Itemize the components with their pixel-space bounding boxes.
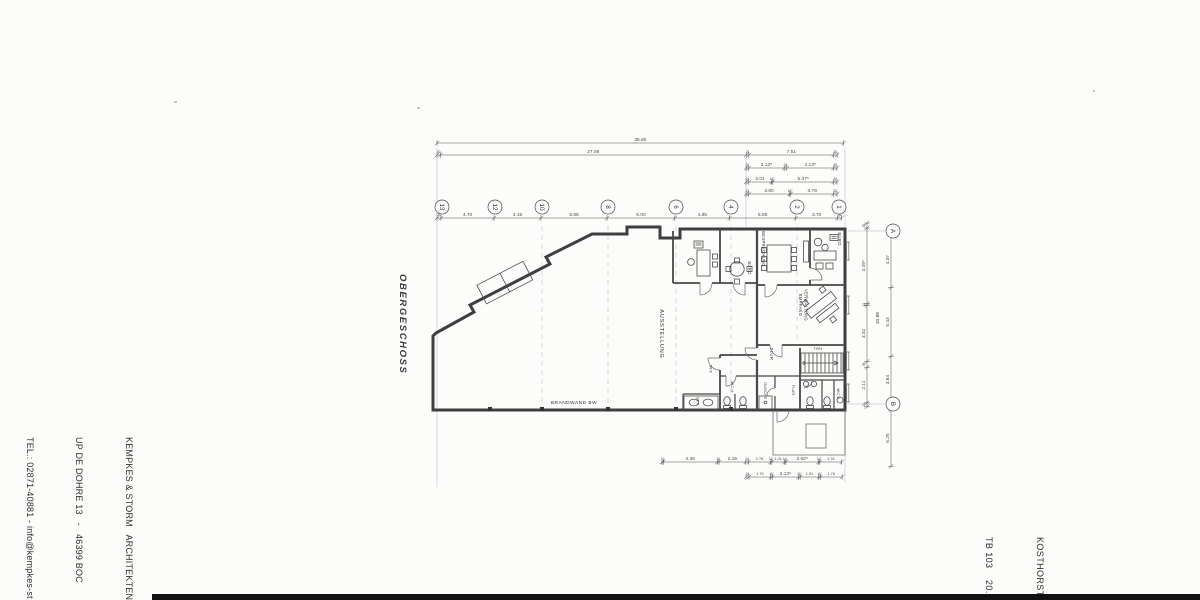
dim-label: 36 xyxy=(862,362,866,366)
dim-label: 1.76 xyxy=(827,472,834,476)
architect-contact-line: TEL.: 02871-40881 - info@kempkes-st xyxy=(22,437,39,600)
toilet xyxy=(724,397,731,409)
corner-office-group xyxy=(814,235,838,270)
dim-label: 4.37 xyxy=(885,255,891,265)
grid-bubble-label: 4 xyxy=(727,205,734,209)
outer-walls xyxy=(433,227,845,410)
dim-label: 5.85 xyxy=(569,212,579,218)
room-label: WC D xyxy=(836,389,840,400)
project-name: KOSTHORST xyxy=(1031,537,1048,599)
grid-bubble-label: 1 xyxy=(835,205,842,209)
dim-label: 12⁵ xyxy=(770,177,776,181)
project-title-block: KOSTHORST TB 103 20.0 xyxy=(963,537,1082,599)
dim-label: 12 xyxy=(862,303,866,307)
grid-line-dashed xyxy=(542,226,797,404)
dim-label: 35.80 xyxy=(634,137,646,143)
dim-label: 24 xyxy=(746,177,750,181)
toilet xyxy=(807,397,814,409)
dim-label: 2.15 xyxy=(728,456,738,462)
dim-label: 10 xyxy=(661,457,665,461)
grid-bubble-label: 6 xyxy=(672,205,679,209)
dim-label: 3.60 xyxy=(764,188,774,194)
dim-label: 24 xyxy=(746,150,750,154)
dim-label: 30 xyxy=(862,224,866,228)
dim-chain: 242.0112⁵5.37⁵30 xyxy=(744,176,839,185)
grid-bubble: 8 xyxy=(601,200,615,214)
dim-chain: 4.375.433.64 xyxy=(885,230,894,405)
scan-edge-strip xyxy=(152,594,1200,600)
architect-address-line: UP DE DOHRE 13 - 46399 BOC xyxy=(71,437,88,600)
room-label: BÜRO xyxy=(837,232,842,246)
room-label: DUSCHE xyxy=(763,382,767,400)
grid-bubble: 1 xyxy=(832,200,846,214)
dim-label: 4.70 xyxy=(463,212,473,218)
scan-speck xyxy=(1093,90,1095,92)
toilet xyxy=(824,397,831,409)
dim-label: 3.64 xyxy=(885,375,891,385)
dim-label: 5.43 xyxy=(885,317,891,327)
interior-walls xyxy=(673,229,845,410)
dim-chain: 6.25 xyxy=(885,408,894,469)
floor-title: OBERGESCHOSS xyxy=(395,274,409,375)
grid-bubble-label: 12 xyxy=(491,204,498,211)
room-label: AUSSTELLUNG xyxy=(658,309,664,358)
grid-bubble-label: 10 xyxy=(538,204,545,211)
dim-label: 24 xyxy=(745,457,749,461)
grid-bubble-label: 2 xyxy=(793,205,800,209)
room-label: BRANDWAND BW xyxy=(551,400,597,406)
dim-label: 11⁵ xyxy=(769,457,774,461)
dim-chain: 3027.06247.5130 xyxy=(435,149,840,158)
dim-label: 11⁵ xyxy=(817,457,822,461)
dim-label: 4.49⁵ xyxy=(861,260,867,271)
dim-label: 3.32 xyxy=(861,328,867,338)
floor-plan-drawing: 35.803027.06247.5130243.13⁵244.13⁵30242.… xyxy=(0,0,1200,600)
dim-label: 6.00 xyxy=(636,212,646,218)
dim-chain: 241.7611⁵2.13⁵11⁵1.5111⁵1.76 xyxy=(744,471,845,480)
room-label: FLUR xyxy=(769,348,774,360)
room-label: FLUR xyxy=(791,385,795,396)
dim-label: 30 xyxy=(834,189,838,193)
dim-label: 3.70 xyxy=(812,212,822,218)
grid-bubble: 12 xyxy=(488,200,502,214)
annex-outline xyxy=(773,410,845,455)
dim-label: 3.79 xyxy=(808,188,818,194)
room-label: TRH xyxy=(814,347,823,351)
grid-bubble: 4 xyxy=(724,200,738,214)
dim-label: 24 xyxy=(746,163,750,167)
dim-label: 30 xyxy=(834,150,838,154)
room-label: WC H xyxy=(730,382,734,393)
room-label: 1.50 xyxy=(696,397,700,404)
dim-label: 4.85 xyxy=(698,212,708,218)
dim-label: 30 xyxy=(833,163,837,167)
dim-label: 11⁵ xyxy=(797,472,802,476)
grid-bubbles-layer: 13121086421AB xyxy=(435,200,900,411)
dim-label: 1.76 xyxy=(827,457,834,461)
dim-label: 3.13⁵ xyxy=(761,162,772,168)
dim-label: 24 xyxy=(746,189,750,193)
dim-label: 1.76 xyxy=(756,457,763,461)
office-desk-group xyxy=(688,241,718,276)
room-label: 10.88 xyxy=(875,312,880,325)
dim-label: 4.35 xyxy=(686,456,696,462)
dim-label: 27.06 xyxy=(587,149,599,155)
grid-bubble-label: 8 xyxy=(604,205,611,209)
dim-chain: 243.6012⁵3.7930 xyxy=(744,188,839,197)
grid-bubble: 6 xyxy=(669,200,683,214)
dim-label: 15 xyxy=(716,457,720,461)
dim-label: 2.13⁵ xyxy=(780,471,791,477)
conference-table-group xyxy=(762,241,809,272)
office-walls xyxy=(673,229,845,410)
dim-chain: 243.13⁵244.13⁵30 xyxy=(744,162,839,171)
dim-label: 24 xyxy=(862,403,866,407)
dim-label: 4.15 xyxy=(513,212,523,218)
dim-label: 24 xyxy=(746,472,750,476)
grid-bubble: B xyxy=(886,397,900,411)
architect-title-block: KEMPKES & STORM ARCHITEKTEN UP DE DOHRE … xyxy=(5,437,170,600)
dim-label: 2.01 xyxy=(755,176,765,182)
grid-bubble: A xyxy=(886,224,900,238)
dim-chain: 304.49⁵123.32362.1124 xyxy=(861,221,870,409)
dim-label: 30 xyxy=(437,150,441,154)
grid-bubble: 2 xyxy=(790,200,804,214)
dim-label: 2.11 xyxy=(861,380,867,389)
dim-label: 6.25 xyxy=(885,433,891,443)
room-label: 3.86 xyxy=(709,365,713,373)
dim-chain: 104.35152.15241.7611⁵1.0111⁵2.62⁵11⁵1.76 xyxy=(660,456,844,465)
room-label: VERWALTUNG xyxy=(804,289,809,321)
dim-label: 1.51 xyxy=(806,472,813,476)
dim-chain: 35.80 xyxy=(435,137,846,146)
grid-bubble-label: B xyxy=(889,402,896,406)
scan-speck xyxy=(174,101,177,103)
grid-bubble-label: 13 xyxy=(438,204,445,211)
dim-label: 11⁵ xyxy=(769,472,774,476)
dim-label: 1.76 xyxy=(756,472,763,476)
room-label: EMPFANG xyxy=(798,294,803,317)
room-label: BESPRECHUNG xyxy=(761,231,766,267)
dim-label: 5.37⁵ xyxy=(798,176,809,182)
dim-label: 11⁵ xyxy=(783,457,788,461)
grid-bubble: 10 xyxy=(535,200,549,214)
grid-bubble: 13 xyxy=(435,200,449,214)
dim-label: 1.01 xyxy=(774,457,781,461)
dim-label: 4.13⁵ xyxy=(805,162,816,168)
dim-label: 5.85 xyxy=(758,212,768,218)
dim-label: 24 xyxy=(784,163,788,167)
dim-label: 30 xyxy=(833,177,837,181)
scan-speck xyxy=(417,107,420,109)
room-label: BÜRO xyxy=(747,261,752,275)
dim-label: 12⁵ xyxy=(788,189,794,193)
sheet-number: TB 103 20.0 xyxy=(980,537,997,599)
architect-name-line: KEMPKES & STORM ARCHITEKTEN xyxy=(121,437,138,600)
toilet xyxy=(740,397,747,409)
stairs xyxy=(801,353,843,373)
dim-label: 7.51 xyxy=(787,149,797,155)
dim-label: 2.62⁵ xyxy=(796,456,807,462)
dim-label: 11⁵ xyxy=(817,472,822,476)
